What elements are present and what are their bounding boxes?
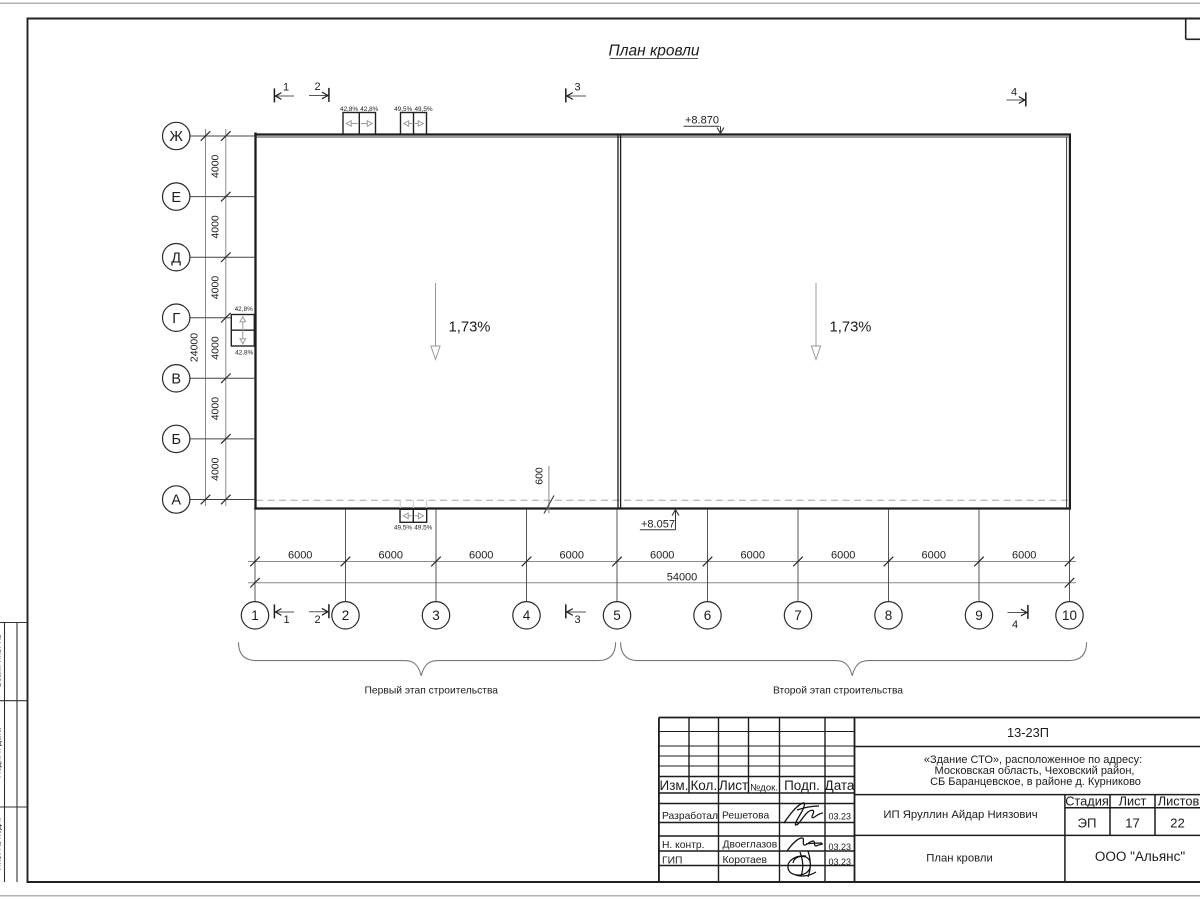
svg-text:3: 3 <box>574 614 580 626</box>
svg-text:6000: 6000 <box>650 549 674 561</box>
svg-text:Подп.: Подп. <box>784 778 820 793</box>
svg-text:Стадия: Стадия <box>1065 793 1109 808</box>
svg-text:+8.057: +8.057 <box>641 519 675 531</box>
svg-text:Ж: Ж <box>170 129 184 145</box>
svg-text:17: 17 <box>1125 816 1140 831</box>
svg-text:6: 6 <box>704 608 712 623</box>
svg-text:24000: 24000 <box>189 333 201 362</box>
svg-text:42,8%: 42,8% <box>340 106 358 113</box>
svg-text:1: 1 <box>283 614 289 626</box>
svg-text:49,5%: 49,5% <box>414 106 432 113</box>
svg-text:54000: 54000 <box>667 572 698 584</box>
svg-text:3: 3 <box>574 82 580 94</box>
svg-text:4000: 4000 <box>209 215 221 239</box>
svg-text:6000: 6000 <box>831 549 855 561</box>
svg-text:4: 4 <box>1012 619 1018 631</box>
svg-text:6000: 6000 <box>741 549 765 561</box>
svg-text:Второй этап строительства: Второй этап строительства <box>773 686 903 697</box>
svg-text:План кровли: План кровли <box>926 853 993 865</box>
svg-text:3: 3 <box>432 608 440 623</box>
svg-text:Лист: Лист <box>719 778 748 793</box>
svg-text:49,5%: 49,5% <box>394 525 412 532</box>
svg-text:2: 2 <box>315 614 321 626</box>
svg-text:ЭП: ЭП <box>1078 816 1097 831</box>
svg-text:6000: 6000 <box>288 549 312 561</box>
svg-text:42,8%: 42,8% <box>360 106 378 113</box>
svg-text:10: 10 <box>1062 608 1077 623</box>
svg-text:Двоеглазов: Двоеглазов <box>723 840 778 851</box>
svg-text:1: 1 <box>251 608 259 623</box>
svg-text:Инв. № подл.: Инв. № подл. <box>0 818 3 871</box>
svg-text:1: 1 <box>283 82 289 94</box>
svg-text:49,5%: 49,5% <box>414 525 432 532</box>
svg-text:ГИП: ГИП <box>662 855 682 866</box>
svg-text:4000: 4000 <box>209 154 221 178</box>
svg-text:4000: 4000 <box>209 457 221 481</box>
svg-text:6000: 6000 <box>469 549 493 561</box>
svg-text:Дата: Дата <box>825 778 855 793</box>
svg-text:13-23П: 13-23П <box>1007 725 1049 740</box>
svg-text:6000: 6000 <box>1012 549 1036 561</box>
svg-text:7: 7 <box>794 608 802 623</box>
svg-text:42,8%: 42,8% <box>235 306 253 313</box>
svg-text:Лист: Лист <box>1119 793 1147 808</box>
svg-text:1,73%: 1,73% <box>830 320 872 336</box>
svg-text:Листов: Листов <box>1158 793 1200 808</box>
svg-text:Е: Е <box>171 190 181 206</box>
svg-text:Решетова: Решетова <box>722 811 769 822</box>
svg-text:+8.870: +8.870 <box>685 115 719 127</box>
svg-text:4000: 4000 <box>209 276 221 300</box>
svg-text:03.23: 03.23 <box>829 812 852 822</box>
svg-text:ИП Яруллин Айдар Ниязович: ИП Яруллин Айдар Ниязович <box>883 809 1037 821</box>
svg-text:4000: 4000 <box>209 397 221 421</box>
svg-text:5: 5 <box>613 608 621 623</box>
svg-text:8: 8 <box>885 608 893 623</box>
svg-text:СБ Баранцевское, в районе д. К: СБ Баранцевское, в районе д. Курниково <box>930 776 1141 788</box>
svg-text:1,73%: 1,73% <box>449 320 491 336</box>
svg-text:Б: Б <box>171 432 181 448</box>
svg-text:03.23: 03.23 <box>829 842 852 852</box>
svg-text:Д: Д <box>171 250 181 266</box>
svg-text:4000: 4000 <box>209 336 221 360</box>
svg-text:Коротаев: Коротаев <box>723 855 768 866</box>
svg-text:Разработал: Разработал <box>662 810 718 822</box>
svg-text:6000: 6000 <box>560 549 584 561</box>
svg-text:Г: Г <box>172 311 180 327</box>
svg-text:6000: 6000 <box>379 549 403 561</box>
svg-text:Подп. и дата: Подп. и дата <box>0 728 3 778</box>
svg-text:План кровли: План кровли <box>609 43 700 60</box>
svg-text:Первый этап строительства: Первый этап строительства <box>365 686 499 697</box>
svg-text:22: 22 <box>1170 816 1185 831</box>
svg-text:42,8%: 42,8% <box>235 350 253 357</box>
svg-text:4: 4 <box>523 608 531 623</box>
svg-text:Кол.: Кол. <box>690 778 717 793</box>
svg-text:9: 9 <box>975 608 983 623</box>
svg-text:Изм.: Изм. <box>660 778 689 793</box>
svg-text:600: 600 <box>534 467 546 485</box>
svg-text:А: А <box>171 493 181 509</box>
svg-text:4: 4 <box>1011 87 1017 99</box>
svg-text:№док.: №док. <box>750 783 778 794</box>
svg-text:2: 2 <box>342 608 350 623</box>
svg-text:Взам. инв. №: Взам. инв. № <box>0 635 3 688</box>
svg-text:Н. контр.: Н. контр. <box>662 840 705 851</box>
svg-text:6000: 6000 <box>922 549 946 561</box>
svg-text:49,5%: 49,5% <box>394 106 412 113</box>
svg-text:ООО "Альянс": ООО "Альянс" <box>1095 849 1185 864</box>
svg-text:В: В <box>171 372 181 388</box>
svg-text:2: 2 <box>314 81 320 93</box>
svg-text:03.23: 03.23 <box>829 857 852 867</box>
